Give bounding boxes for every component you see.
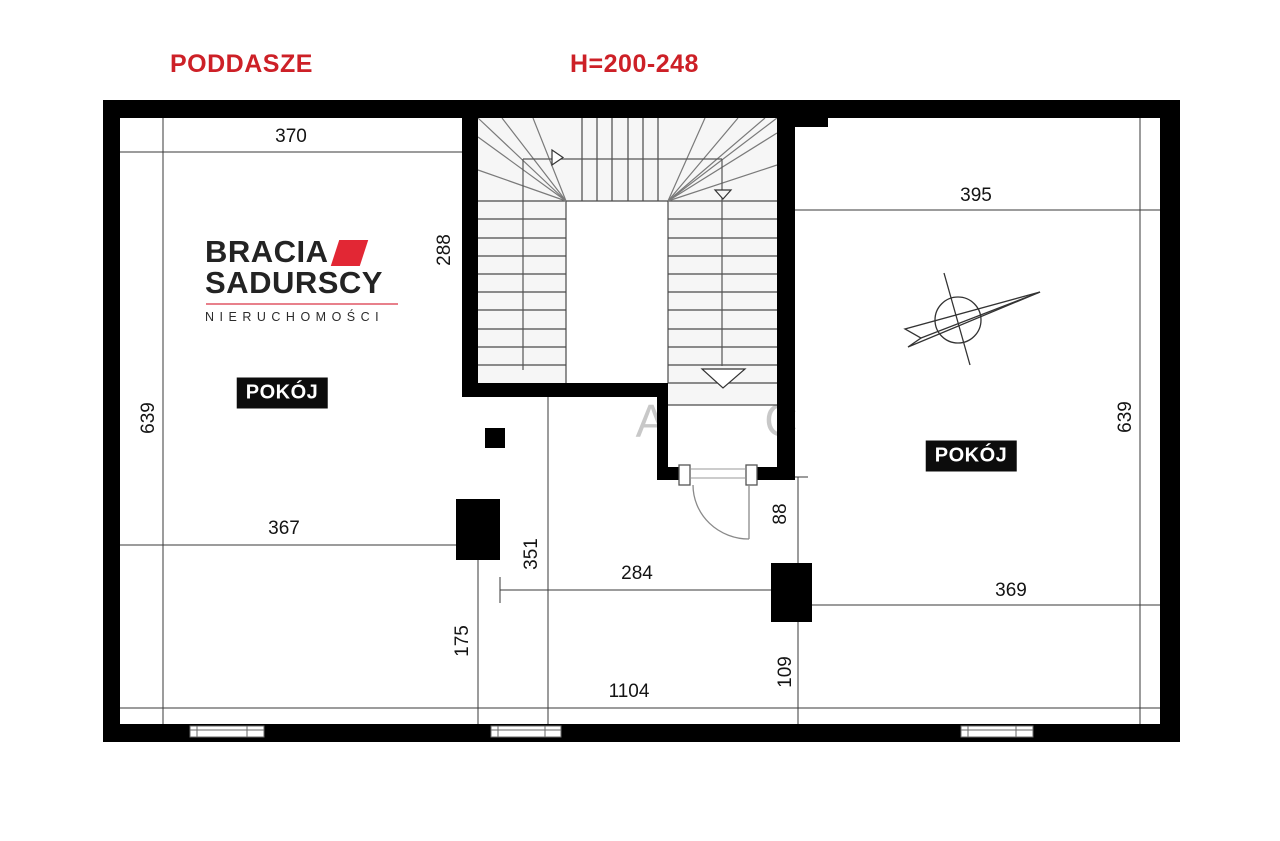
door-swing-arc: [693, 485, 749, 539]
logo-brand-bottom: SADURSCY: [205, 267, 415, 298]
door-jamb-left: [679, 465, 690, 485]
floor-plan-page: A C: [0, 0, 1280, 841]
stairwell-wall-bottom: [462, 383, 668, 397]
wall-top: [103, 100, 1180, 118]
wall-right: [1160, 100, 1180, 742]
chimneys: [456, 428, 812, 622]
logo-subtitle: NIERUCHOMOŚCI: [205, 310, 415, 324]
window: [190, 726, 264, 737]
logo-brand-top: BRACIA: [205, 236, 329, 267]
chimney-small: [485, 428, 505, 448]
window: [491, 726, 561, 737]
chimney-left: [456, 499, 500, 560]
stairwell-wall-notch: [795, 118, 828, 127]
window: [961, 726, 1033, 737]
door: [679, 465, 757, 539]
logo-flag-icon: [330, 240, 367, 266]
chimney-right: [771, 563, 812, 622]
floor-plan-drawing: [0, 0, 1280, 841]
agency-logo: BRACIA SADURSCY NIERUCHOMOŚCI: [205, 236, 415, 324]
wall-left: [103, 100, 120, 742]
logo-divider: [206, 303, 398, 305]
stairwell-wall-right: [777, 118, 795, 480]
door-jamb-right: [746, 465, 757, 485]
compass-icon: [905, 273, 1040, 365]
stairwell-wall-left: [462, 118, 478, 397]
